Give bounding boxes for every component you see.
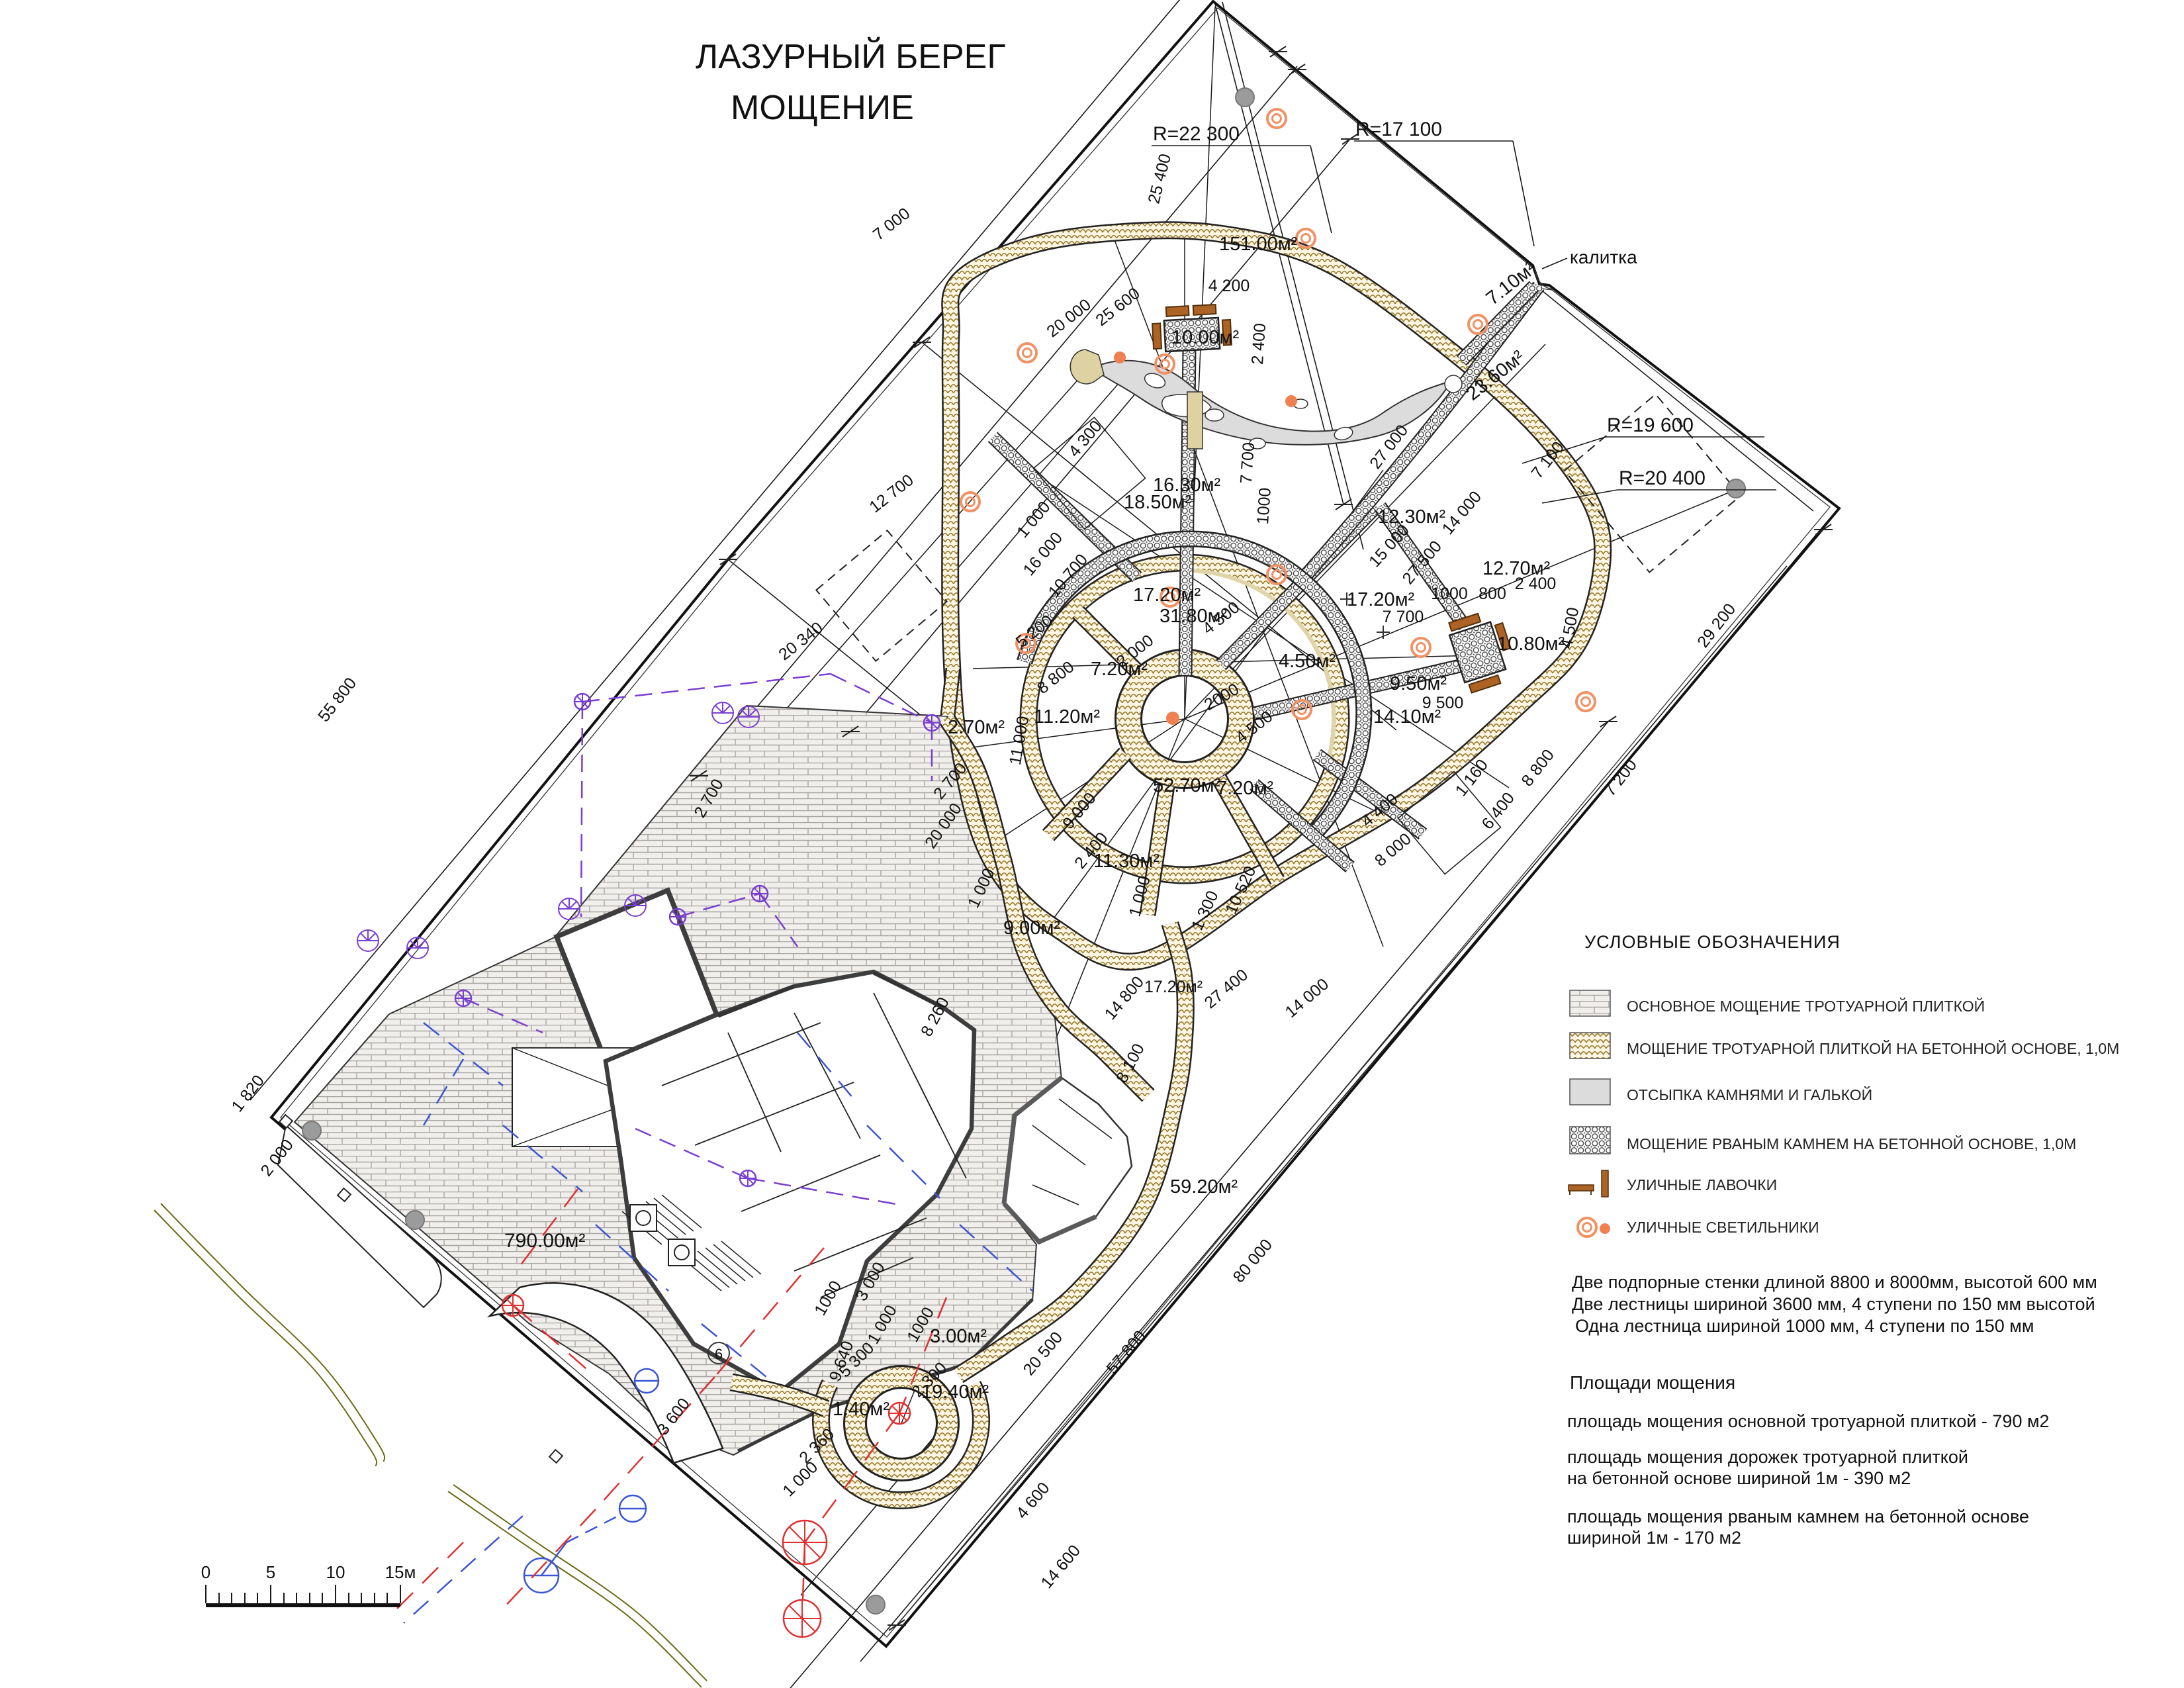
- svg-text:4.50м²: 4.50м²: [1279, 651, 1336, 672]
- svg-text:17.20м²: 17.20м²: [1133, 585, 1201, 606]
- svg-text:4 200: 4 200: [1208, 277, 1250, 295]
- svg-text:52.70м²: 52.70м²: [1153, 775, 1221, 796]
- svg-text:R=19 600: R=19 600: [1607, 414, 1694, 436]
- svg-text:18.50м²: 18.50м²: [1124, 492, 1192, 513]
- svg-text:площадь мощения дорожек тротуа: площадь мощения дорожек тротуарной плитк…: [1567, 1447, 1968, 1467]
- svg-text:Две лестницы шириной 3600 мм,: Две лестницы шириной 3600 мм, 4 ступени …: [1572, 1294, 2095, 1314]
- svg-text:2.70м²: 2.70м²: [948, 717, 1005, 738]
- svg-text:МОЩЕНИЕ РВАНЫМ КАМНЕМ НА БЕТОН: МОЩЕНИЕ РВАНЫМ КАМНЕМ НА БЕТОННОЙ ОСНОВЕ…: [1627, 1135, 2076, 1152]
- svg-text:МОЩЕНИЕ ТРОТУАРНОЙ ПЛИТКОЙ НА: МОЩЕНИЕ ТРОТУАРНОЙ ПЛИТКОЙ НА БЕТОННОЙ О…: [1627, 1039, 2119, 1057]
- svg-text:151.00м²: 151.00м²: [1219, 234, 1298, 255]
- svg-text:Две подпорные стенки длиной 88: Две подпорные стенки длиной 8800 и 8000м…: [1572, 1272, 2097, 1292]
- svg-text:11.30м²: 11.30м²: [1093, 851, 1160, 872]
- svg-text:9.00м²: 9.00м²: [1003, 917, 1060, 939]
- svg-text:площадь мощения рваным камнем: площадь мощения рваным камнем на бетонно…: [1567, 1507, 2029, 1526]
- svg-text:11.20м²: 11.20м²: [1034, 706, 1100, 727]
- svg-text:0: 0: [201, 1562, 210, 1582]
- svg-text:15м: 15м: [385, 1562, 416, 1582]
- svg-text:800: 800: [1479, 585, 1506, 603]
- svg-text:5: 5: [266, 1562, 275, 1582]
- svg-text:2 400: 2 400: [1248, 322, 1269, 365]
- svg-text:УЛИЧНЫЕ ЛАВОЧКИ: УЛИЧНЫЕ ЛАВОЧКИ: [1627, 1176, 1777, 1194]
- svg-text:на бетонной основе шириной 1м: на бетонной основе шириной 1м - 390 м2: [1567, 1468, 1911, 1488]
- svg-text:17.20м²: 17.20м²: [1144, 978, 1203, 996]
- svg-text:калитка: калитка: [1570, 247, 1637, 267]
- svg-text:7 700: 7 700: [1383, 608, 1424, 626]
- svg-text:10.80м²: 10.80м²: [1497, 633, 1565, 655]
- svg-text:12.30м²: 12.30м²: [1378, 506, 1446, 528]
- svg-text:2 400: 2 400: [1515, 575, 1557, 593]
- svg-text:7 700: 7 700: [1237, 442, 1258, 484]
- svg-text:9 500: 9 500: [1422, 694, 1464, 712]
- svg-text:Площади мощения: Площади мощения: [1570, 1372, 1735, 1393]
- svg-text:УЛИЧНЫЕ СВЕТИЛЬНИКИ: УЛИЧНЫЕ СВЕТИЛЬНИКИ: [1627, 1219, 1819, 1236]
- svg-text:R=20 400: R=20 400: [1619, 467, 1706, 489]
- svg-text:ЛАЗУРНЫЙ БЕРЕГ: ЛАЗУРНЫЙ БЕРЕГ: [696, 37, 1006, 76]
- svg-text:7.20м²: 7.20м²: [1216, 778, 1273, 799]
- svg-text:1000: 1000: [1431, 585, 1468, 603]
- svg-text:10.00м²: 10.00м²: [1171, 327, 1240, 348]
- svg-text:3.00м²: 3.00м²: [930, 1326, 987, 1347]
- svg-text:шириной 1м - 170 м2: шириной 1м - 170 м2: [1567, 1528, 1741, 1548]
- svg-text:790.00м²: 790.00м²: [504, 1230, 585, 1252]
- svg-text:10: 10: [326, 1562, 345, 1582]
- svg-text:площадь мощения основной троту: площадь мощения основной тротуарной плит…: [1567, 1411, 2050, 1431]
- svg-text:9.50м²: 9.50м²: [1390, 673, 1447, 694]
- svg-text:МОЩЕНИЕ: МОЩЕНИЕ: [731, 89, 914, 127]
- svg-text:УСЛОВНЫЕ ОБОЗНАЧЕНИЯ: УСЛОВНЫЕ ОБОЗНАЧЕНИЯ: [1584, 932, 1841, 952]
- svg-text:59.20м²: 59.20м²: [1170, 1176, 1238, 1197]
- svg-text:1000: 1000: [1253, 487, 1275, 525]
- svg-text:R=17 100: R=17 100: [1355, 118, 1442, 140]
- svg-text:1.40м²: 1.40м²: [833, 1399, 889, 1420]
- svg-text:ОТСЫПКА КАМНЯМИ И ГАЛЬКОЙ: ОТСЫПКА КАМНЯМИ И ГАЛЬКОЙ: [1627, 1086, 1872, 1103]
- svg-text:R=22 300: R=22 300: [1153, 123, 1240, 145]
- svg-text:6: 6: [715, 1346, 723, 1362]
- svg-text:Одна лестница шириной 1000 мм,: Одна лестница шириной 1000 мм, 4 ступени…: [1575, 1316, 2034, 1336]
- svg-text:ОСНОВНОЕ МОЩЕНИЕ ТРОТУАРНОЙ ПЛ: ОСНОВНОЕ МОЩЕНИЕ ТРОТУАРНОЙ ПЛИТКОЙ: [1627, 997, 1985, 1015]
